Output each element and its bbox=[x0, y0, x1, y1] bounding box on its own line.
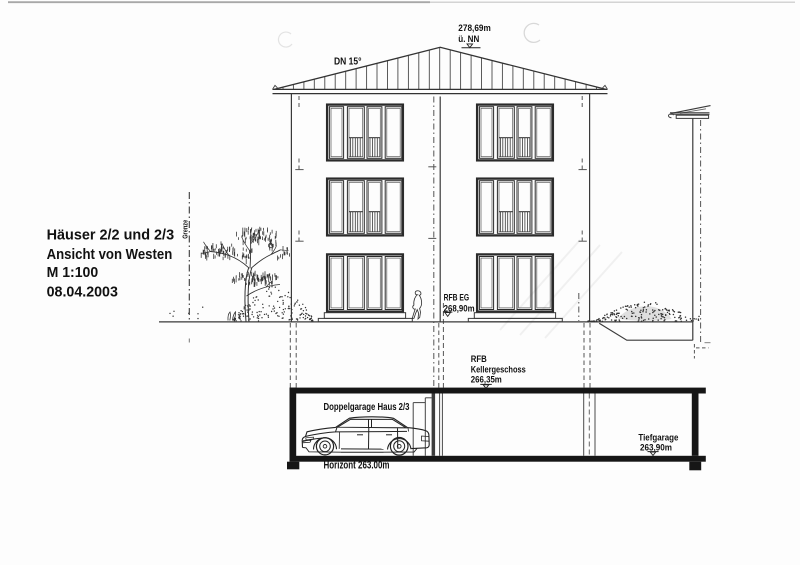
svg-text:M 1:100: M 1:100 bbox=[47, 265, 99, 281]
svg-text:Horizont 263.00m: Horizont 263.00m bbox=[324, 460, 390, 472]
svg-text:Grenze: Grenze bbox=[180, 220, 189, 239]
svg-text:Häuser 2/2 und 2/3: Häuser 2/2 und 2/3 bbox=[47, 228, 175, 244]
svg-text:DN 15°: DN 15° bbox=[334, 56, 362, 67]
svg-text:263,90m: 263,90m bbox=[640, 441, 672, 452]
svg-text:Ansicht von Westen: Ansicht von Westen bbox=[47, 247, 173, 263]
svg-text:RFB EG: RFB EG bbox=[444, 292, 470, 303]
svg-text:278,69m: 278,69m bbox=[458, 23, 491, 34]
svg-text:RFB: RFB bbox=[471, 353, 487, 364]
svg-text:Doppelgarage Haus 2/3: Doppelgarage Haus 2/3 bbox=[324, 402, 410, 413]
svg-text:266,35m: 266,35m bbox=[471, 374, 502, 385]
svg-text:08.04.2003: 08.04.2003 bbox=[47, 284, 118, 300]
